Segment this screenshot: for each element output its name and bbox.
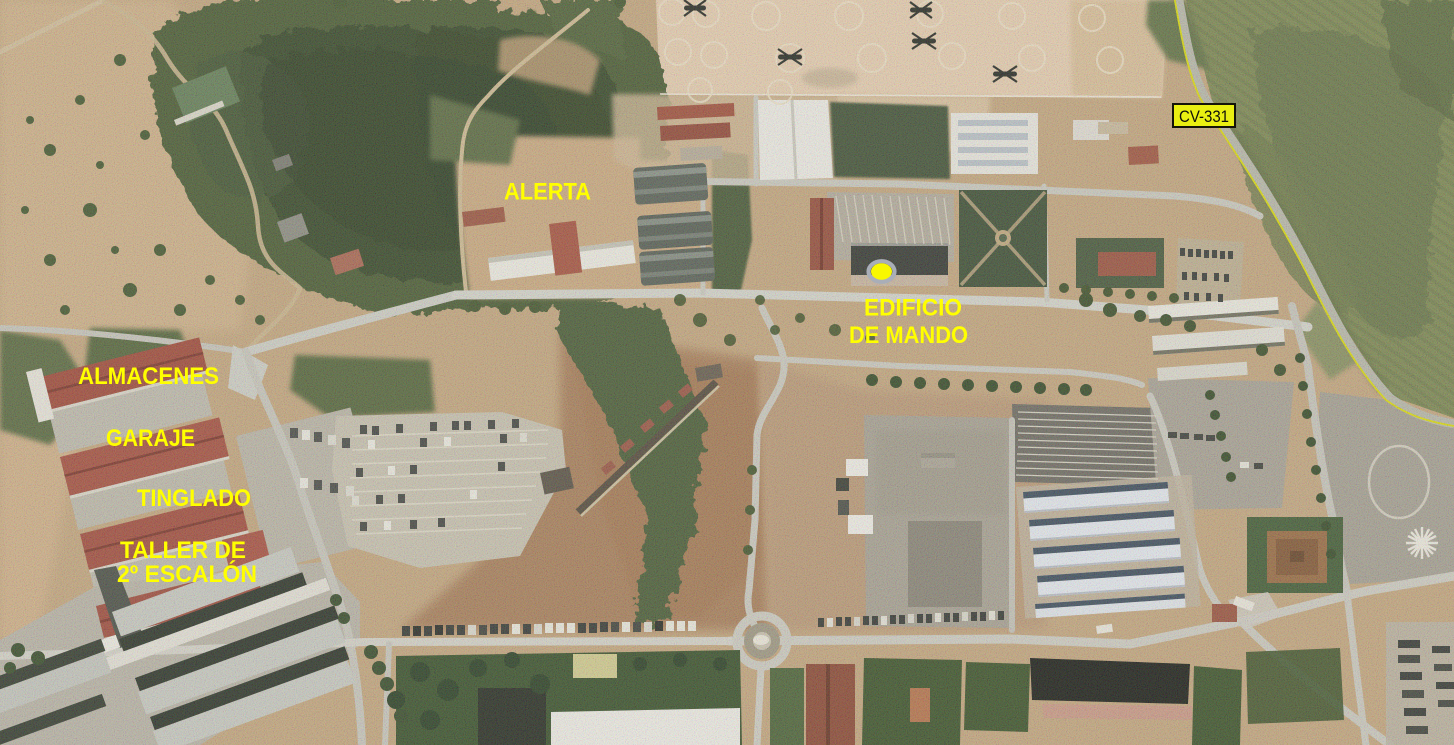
svg-text:DE MANDO: DE MANDO [849,322,968,349]
svg-text:CV-331: CV-331 [1179,107,1229,126]
svg-text:EDIFICIO: EDIFICIO [864,295,962,322]
svg-text:ALERTA: ALERTA [504,179,591,206]
svg-text:TALLER DE: TALLER DE [120,537,246,564]
svg-text:ALMACENES: ALMACENES [78,363,219,390]
svg-text:GARAJE: GARAJE [106,425,195,452]
svg-text:2º ESCALÓN: 2º ESCALÓN [117,560,257,588]
svg-text:TINGLADO: TINGLADO [137,485,251,512]
